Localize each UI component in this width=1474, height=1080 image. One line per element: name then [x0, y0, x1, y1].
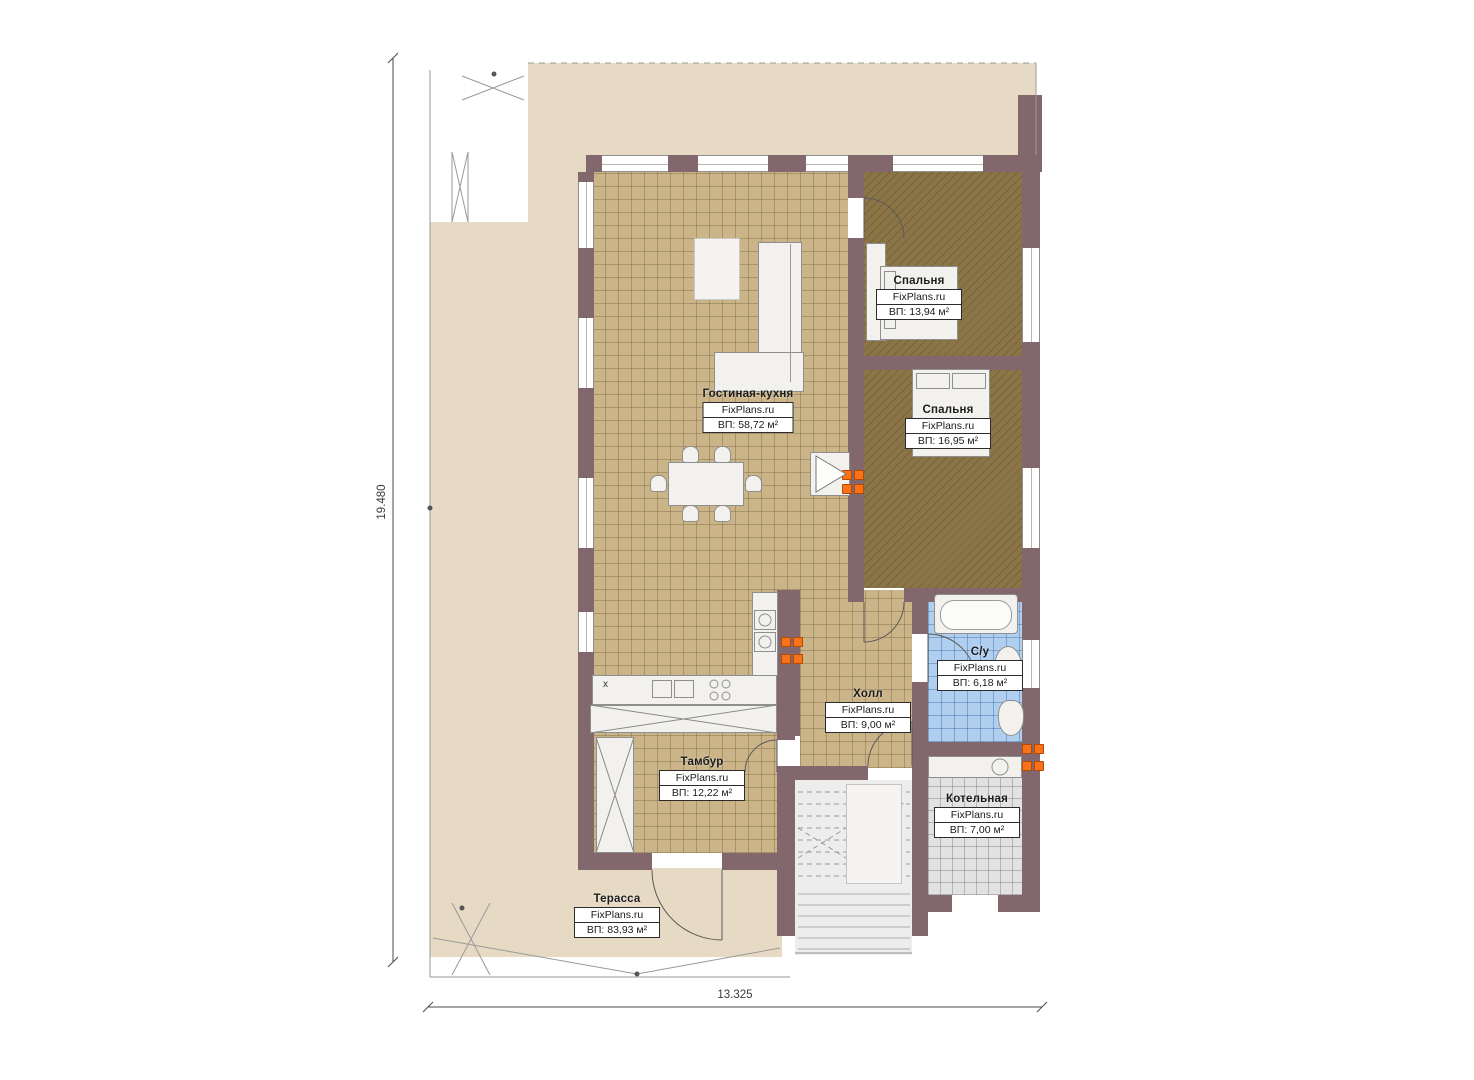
chair	[714, 446, 731, 463]
room-name: Котельная	[934, 793, 1020, 805]
appliance-washer	[754, 632, 776, 652]
chair	[682, 446, 699, 463]
chair	[650, 475, 667, 492]
hall-floor	[800, 590, 912, 768]
wall-living-bedroom-b	[848, 238, 864, 588]
room-info-box: FixPlans.ru ВП: 9,00 м²	[825, 702, 911, 733]
area-label: ВП: 13,94 м²	[877, 305, 961, 319]
window-right-bedroom2	[1022, 468, 1040, 548]
tambour-closet	[596, 737, 634, 853]
power-socket-icon	[842, 484, 864, 494]
wall-porch-left-b	[777, 772, 795, 936]
kitchen-sink	[674, 680, 694, 698]
room-label-bedroom2: Спальня FixPlans.ru ВП: 16,95 м²	[905, 404, 991, 449]
room-label-bedroom1: Спальня FixPlans.ru ВП: 13,94 м²	[876, 275, 962, 320]
room-label-boiler: Котельная FixPlans.ru ВП: 7,00 м²	[934, 793, 1020, 838]
room-label-hall: Холл FixPlans.ru ВП: 9,00 м²	[825, 688, 911, 733]
room-label-bathroom: С/у FixPlans.ru ВП: 6,18 м²	[937, 646, 1023, 691]
room-name: Терасса	[574, 893, 660, 905]
window-left-2	[578, 318, 594, 388]
kitchen-sink	[652, 680, 672, 698]
brand-label: FixPlans.ru	[575, 908, 659, 923]
wall-top-right-stub	[1018, 95, 1042, 172]
room-name: Спальня	[905, 404, 991, 416]
room-info-box: FixPlans.ru ВП: 13,94 м²	[876, 289, 962, 320]
power-socket-icon	[781, 654, 803, 664]
wall-living-bedroom-a	[848, 172, 864, 198]
room-info-box: FixPlans.ru ВП: 7,00 м²	[934, 807, 1020, 838]
room-label-terrace: Терасса FixPlans.ru ВП: 83,93 м²	[574, 893, 660, 938]
room-name: С/у	[937, 646, 1023, 658]
brand-label: FixPlans.ru	[826, 703, 910, 718]
window-top-1	[602, 155, 668, 172]
sofa-cushion-line	[790, 244, 791, 382]
toilet	[998, 700, 1024, 736]
power-socket-icon	[781, 637, 803, 647]
area-label: ВП: 12,22 м²	[660, 786, 744, 800]
window-left-4	[578, 612, 594, 652]
stairs-landing	[846, 784, 902, 884]
window-top-3	[806, 155, 848, 172]
wall-bedrooms-bottom-a	[848, 588, 864, 602]
power-socket-icon	[1022, 744, 1044, 754]
brand-label: FixPlans.ru	[906, 419, 990, 434]
rug	[694, 238, 740, 300]
bathtub	[934, 594, 1018, 634]
room-info-box: FixPlans.ru ВП: 12,22 м²	[659, 770, 745, 801]
dimension-horizontal: 13.325	[690, 989, 780, 1001]
chair	[745, 475, 762, 492]
area-label: ВП: 58,72 м²	[704, 418, 793, 432]
boiler-counter	[928, 756, 1022, 778]
wall-bath-left-b	[912, 682, 928, 742]
window-right-bathroom	[1022, 640, 1040, 688]
room-label-living: Гостиная-кухня FixPlans.ru ВП: 58,72 м²	[703, 388, 794, 433]
dining-table	[668, 462, 744, 506]
window-top-2	[698, 155, 768, 172]
pillow	[952, 373, 986, 389]
room-name: Спальня	[876, 275, 962, 287]
room-name: Холл	[825, 688, 911, 700]
dimension-vertical: 19.480	[376, 472, 388, 532]
power-socket-icon	[842, 470, 864, 480]
chair	[714, 505, 731, 522]
brand-label: FixPlans.ru	[877, 290, 961, 305]
terrace-area-left	[430, 222, 586, 868]
window-left-1	[578, 182, 594, 248]
wardrobe	[590, 705, 777, 733]
wall-bedroom-divider	[864, 356, 1022, 370]
window-left-3	[578, 478, 594, 548]
area-label: ВП: 7,00 м²	[935, 823, 1019, 837]
area-label: ВП: 6,18 м²	[938, 676, 1022, 690]
wall-boiler-bottom-a	[912, 895, 952, 912]
window-top-bedroom	[893, 155, 983, 172]
room-label-tambour: Тамбур FixPlans.ru ВП: 12,22 м²	[659, 756, 745, 801]
appliance-washer	[754, 610, 776, 630]
brand-label: FixPlans.ru	[660, 771, 744, 786]
floor-plan-canvas: Гостиная-кухня FixPlans.ru ВП: 58,72 м² …	[0, 0, 1474, 1080]
wall-porch-left-a	[777, 733, 795, 740]
room-info-box: FixPlans.ru ВП: 83,93 м²	[574, 907, 660, 938]
wall-bottom-a	[578, 853, 652, 870]
wall-boiler-bottom-b	[998, 895, 1024, 912]
wall-bath-boiler	[912, 742, 1024, 756]
brand-label: FixPlans.ru	[704, 403, 793, 418]
chair	[682, 505, 699, 522]
brand-label: FixPlans.ru	[938, 661, 1022, 676]
wall-bath-left-a	[912, 602, 928, 634]
brand-label: FixPlans.ru	[935, 808, 1019, 823]
room-info-box: FixPlans.ru ВП: 16,95 м²	[905, 418, 991, 449]
room-info-box: FixPlans.ru ВП: 6,18 м²	[937, 660, 1023, 691]
power-socket-icon	[1022, 761, 1044, 771]
room-name: Гостиная-кухня	[703, 388, 794, 400]
room-name: Тамбур	[659, 756, 745, 768]
kitchen-x-marker: x	[603, 679, 608, 690]
room-info-box: FixPlans.ru ВП: 58,72 м²	[703, 402, 794, 433]
area-label: ВП: 16,95 м²	[906, 434, 990, 448]
pillow	[916, 373, 950, 389]
area-label: ВП: 83,93 м²	[575, 923, 659, 937]
window-right-bedroom1	[1022, 248, 1040, 342]
area-label: ВП: 9,00 м²	[826, 718, 910, 732]
terrace-area-top	[528, 63, 1036, 155]
bathtub-basin	[940, 600, 1012, 630]
